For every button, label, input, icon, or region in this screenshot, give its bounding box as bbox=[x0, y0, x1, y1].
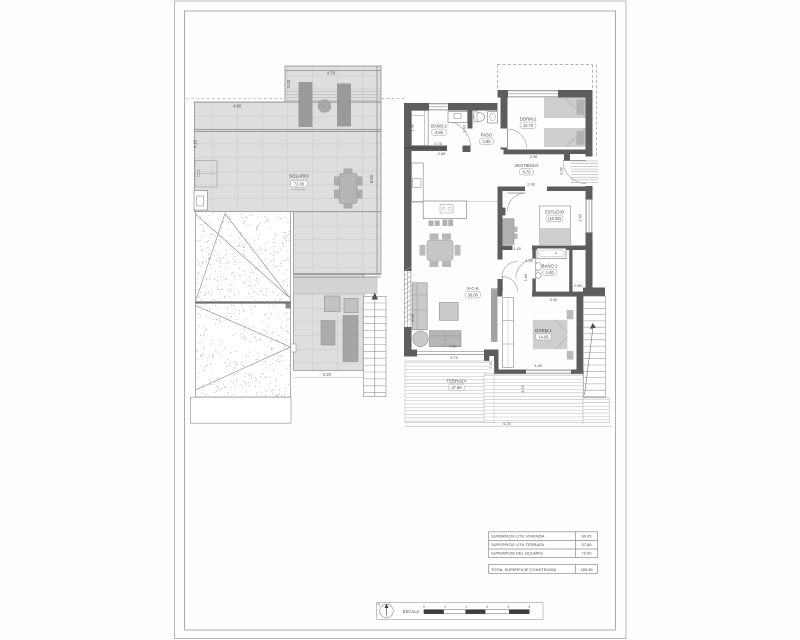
svg-text:3.00: 3.00 bbox=[550, 297, 558, 302]
svg-text:1.40: 1.40 bbox=[462, 124, 467, 132]
svg-text:14.95: 14.95 bbox=[538, 334, 549, 339]
svg-text:90.05: 90.05 bbox=[581, 534, 592, 539]
svg-text:3.45: 3.45 bbox=[534, 363, 542, 368]
svg-text:DORM.2: DORM.2 bbox=[520, 117, 537, 122]
svg-text:1.60: 1.60 bbox=[523, 273, 528, 281]
svg-text:4: 4 bbox=[507, 605, 509, 609]
svg-text:TERRAZA: TERRAZA bbox=[446, 379, 466, 384]
svg-text:2.88: 2.88 bbox=[438, 151, 446, 156]
svg-text:PASO: PASO bbox=[481, 133, 493, 138]
svg-text:BAÑO 1: BAÑO 1 bbox=[542, 264, 558, 269]
svg-text:4.40: 4.40 bbox=[546, 270, 555, 275]
svg-text:37.80: 37.80 bbox=[451, 385, 462, 390]
svg-text:1.65: 1.65 bbox=[525, 258, 533, 263]
svg-text:VESTIBULO: VESTIBULO bbox=[514, 163, 539, 168]
svg-text:6.20: 6.20 bbox=[503, 421, 511, 426]
svg-text:10.70: 10.70 bbox=[523, 123, 534, 128]
svg-text:2: 2 bbox=[465, 605, 467, 609]
svg-text:4.10: 4.10 bbox=[193, 139, 198, 148]
svg-text:3.75: 3.75 bbox=[450, 355, 458, 360]
svg-text:ESTUDIO: ESTUDIO bbox=[545, 210, 565, 215]
svg-text:3: 3 bbox=[486, 605, 488, 609]
svg-text:1.68: 1.68 bbox=[559, 167, 564, 175]
svg-text:S-C-K: S-C-K bbox=[467, 286, 479, 291]
svg-text:2.20: 2.20 bbox=[488, 360, 493, 368]
svg-text:1.45: 1.45 bbox=[513, 246, 521, 251]
svg-text:1.98: 1.98 bbox=[410, 124, 415, 132]
svg-text:4.90: 4.90 bbox=[233, 104, 242, 109]
svg-text:4.20: 4.20 bbox=[323, 372, 332, 377]
svg-text:6.08: 6.08 bbox=[410, 314, 415, 322]
svg-text:2.85: 2.85 bbox=[483, 139, 492, 144]
svg-text:37.80: 37.80 bbox=[581, 542, 592, 547]
svg-text:1: 1 bbox=[444, 605, 446, 609]
svg-text:5: 5 bbox=[529, 605, 531, 609]
svg-text:ESCALA: ESCALA bbox=[403, 609, 420, 614]
svg-text:SUPERFICIE DEL SOLARIO: SUPERFICIE DEL SOLARIO bbox=[491, 551, 543, 556]
svg-text:SUPERFICIE UTIL TERRAZA: SUPERFICIE UTIL TERRAZA bbox=[491, 542, 545, 547]
svg-text:2.78: 2.78 bbox=[434, 141, 442, 146]
svg-text:SOLARIO: SOLARIO bbox=[289, 174, 309, 179]
svg-text:4.85: 4.85 bbox=[435, 130, 444, 135]
svg-text:4.70: 4.70 bbox=[523, 169, 532, 174]
svg-text:185.35: 185.35 bbox=[580, 567, 593, 572]
svg-text:BAÑO 2: BAÑO 2 bbox=[431, 124, 447, 129]
svg-text:4.50: 4.50 bbox=[449, 344, 457, 349]
svg-text:DORM.1: DORM.1 bbox=[535, 328, 552, 333]
svg-text:TOTAL SUPERFICIE CONSTRUIDA: TOTAL SUPERFICIE CONSTRUIDA bbox=[491, 567, 556, 572]
svg-text:4.70: 4.70 bbox=[327, 71, 336, 76]
svg-text:3.00: 3.00 bbox=[286, 79, 291, 88]
svg-text:0.80: 0.80 bbox=[574, 284, 581, 288]
svg-text:2.08: 2.08 bbox=[527, 182, 535, 187]
svg-text:72.00: 72.00 bbox=[294, 182, 305, 187]
svg-text:3.20: 3.20 bbox=[520, 384, 525, 392]
svg-text:(10.00): (10.00) bbox=[548, 216, 562, 221]
svg-text:72.00: 72.00 bbox=[581, 551, 592, 556]
svg-text:0: 0 bbox=[423, 605, 425, 609]
svg-text:8.50: 8.50 bbox=[369, 174, 374, 183]
svg-text:38.00: 38.00 bbox=[468, 292, 479, 297]
svg-text:SUPERFICIE UTIL VIVIENDA: SUPERFICIE UTIL VIVIENDA bbox=[491, 534, 545, 539]
svg-text:2.50: 2.50 bbox=[578, 213, 583, 221]
